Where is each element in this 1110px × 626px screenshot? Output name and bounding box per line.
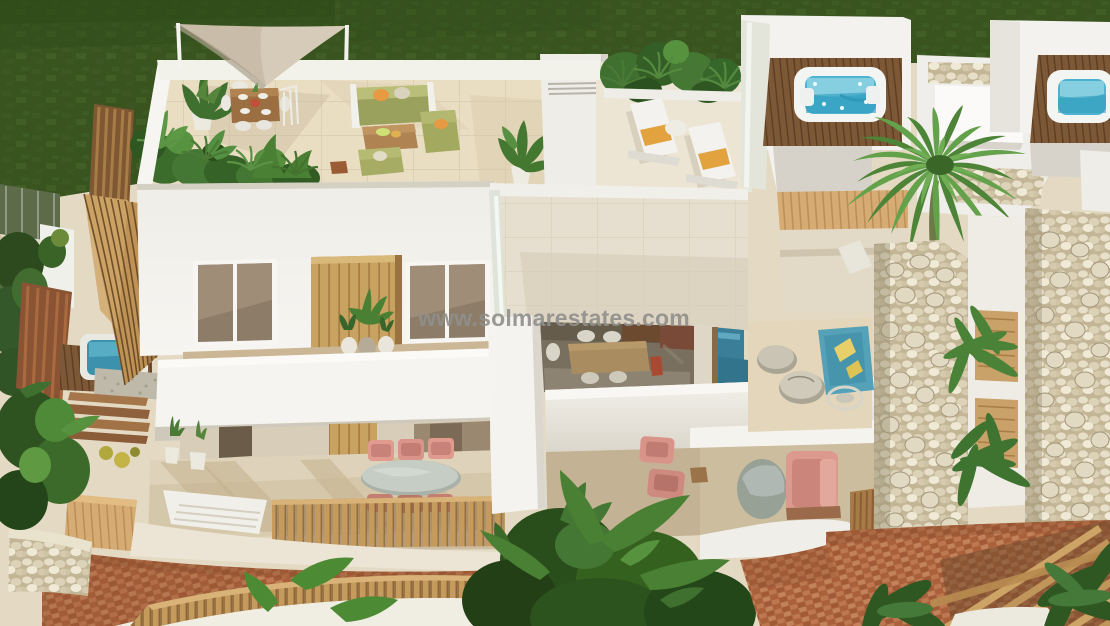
- svg-text:www.solmarestates.com: www.solmarestates.com: [417, 305, 690, 331]
